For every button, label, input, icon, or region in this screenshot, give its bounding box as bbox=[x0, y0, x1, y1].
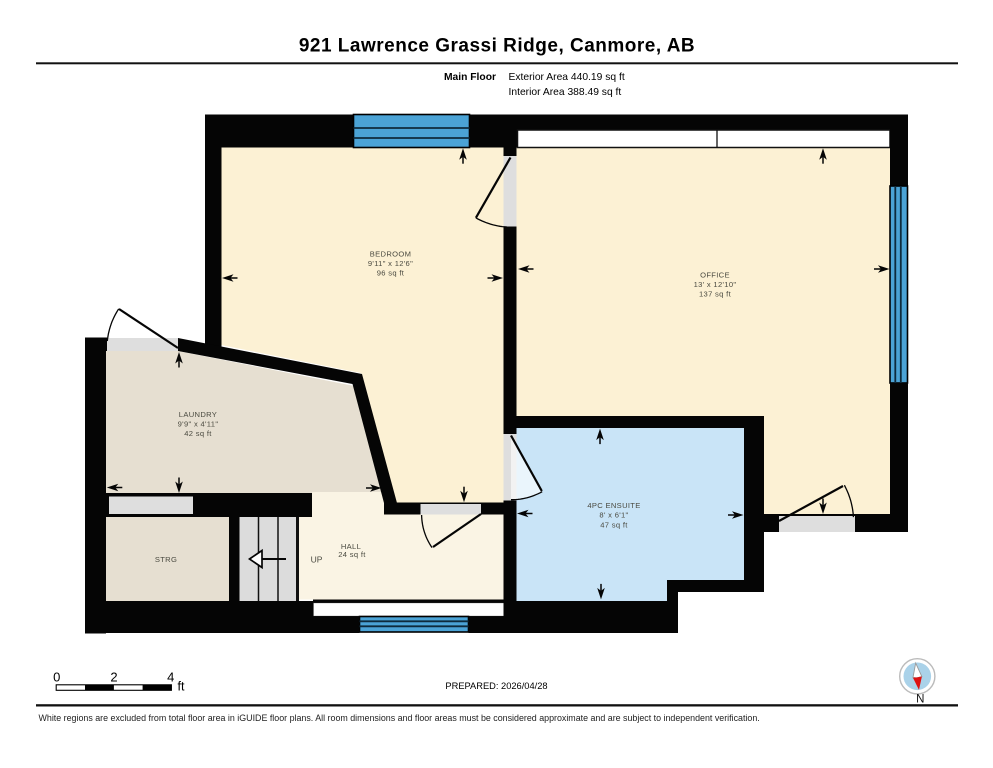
svg-text:BEDROOM: BEDROOM bbox=[370, 250, 411, 259]
svg-text:9'9" x 4'11": 9'9" x 4'11" bbox=[178, 420, 219, 429]
svg-text:White regions are excluded fro: White regions are excluded from total fl… bbox=[39, 713, 760, 723]
svg-text:13' x 12'10": 13' x 12'10" bbox=[694, 280, 737, 289]
svg-text:42 sq ft: 42 sq ft bbox=[184, 429, 212, 438]
svg-text:24 sq ft: 24 sq ft bbox=[338, 550, 366, 559]
svg-text:STRG: STRG bbox=[155, 555, 177, 564]
svg-text:Exterior Area 440.19 sq ft: Exterior Area 440.19 sq ft bbox=[509, 72, 625, 83]
svg-text:137 sq ft: 137 sq ft bbox=[699, 290, 732, 299]
svg-text:921 Lawrence Grassi Ridge, Can: 921 Lawrence Grassi Ridge, Canmore, AB bbox=[299, 36, 695, 57]
svg-text:Interior Area 388.49 sq ft: Interior Area 388.49 sq ft bbox=[509, 87, 622, 98]
svg-text:0: 0 bbox=[53, 670, 60, 685]
svg-text:ft: ft bbox=[178, 680, 185, 694]
svg-text:2: 2 bbox=[110, 670, 117, 685]
svg-text:9'11" x 12'6": 9'11" x 12'6" bbox=[368, 259, 413, 268]
svg-text:Main Floor: Main Floor bbox=[444, 72, 496, 83]
svg-text:47 sq ft: 47 sq ft bbox=[600, 520, 628, 529]
svg-text:UP: UP bbox=[311, 555, 323, 565]
svg-text:LAUNDRY: LAUNDRY bbox=[179, 410, 217, 419]
svg-text:PREPARED: 2026/04/28: PREPARED: 2026/04/28 bbox=[445, 681, 547, 691]
svg-text:4PC ENSUITE: 4PC ENSUITE bbox=[587, 501, 640, 510]
svg-text:8' x 6'1": 8' x 6'1" bbox=[599, 511, 628, 520]
svg-text:OFFICE: OFFICE bbox=[700, 270, 730, 279]
svg-text:96 sq ft: 96 sq ft bbox=[377, 269, 405, 278]
svg-text:N: N bbox=[916, 694, 924, 706]
svg-text:4: 4 bbox=[167, 670, 174, 685]
